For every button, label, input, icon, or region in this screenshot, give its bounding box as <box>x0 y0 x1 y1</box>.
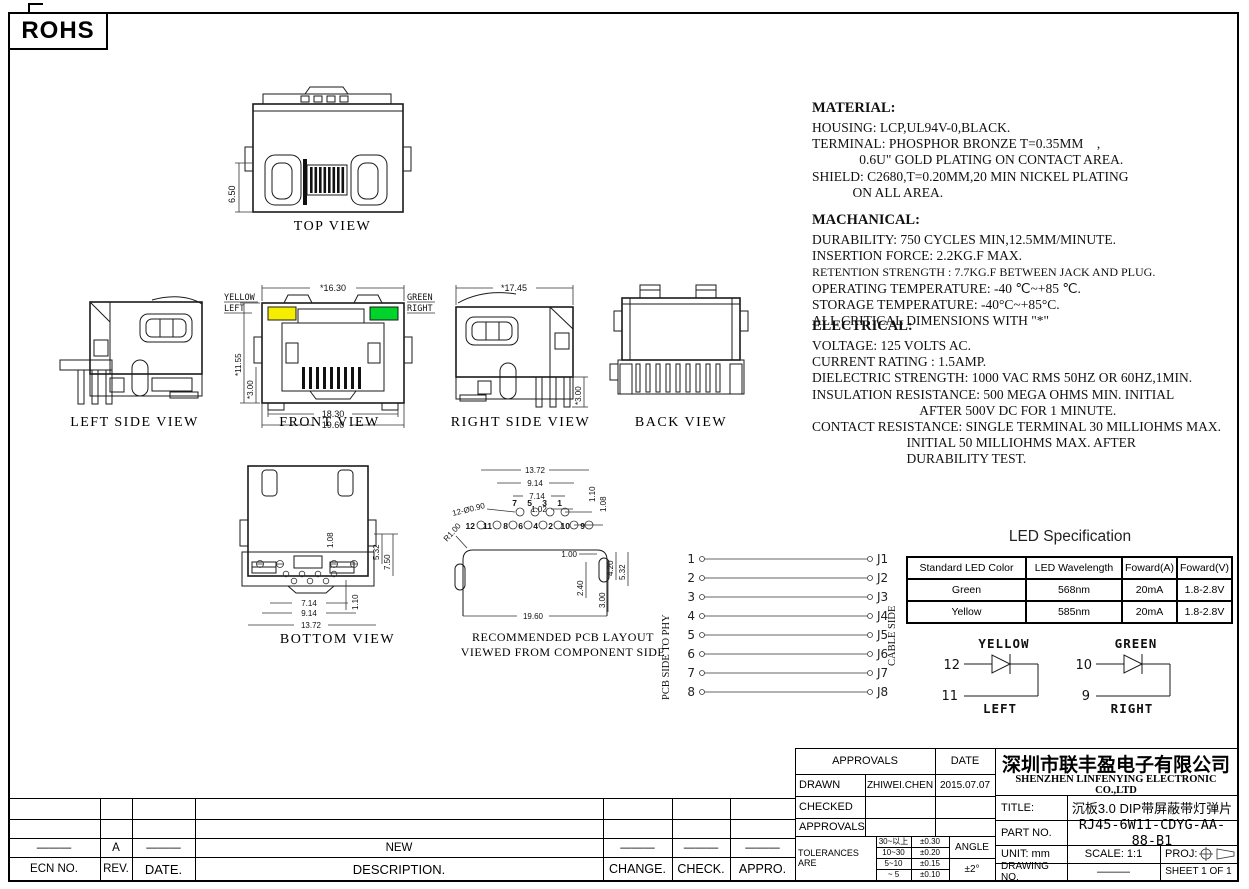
front-led-left-pos: LEFT <box>224 304 244 314</box>
dim-5-32-bottom: 5.32 <box>372 544 381 560</box>
led-col-header: Foward(A) <box>1122 557 1177 579</box>
svg-text:3: 3 <box>687 590 695 604</box>
svg-text:J5: J5 <box>876 628 888 642</box>
led-col-header: LED Wavelength <box>1026 557 1122 579</box>
wiring-rows: 1 J1 2 J2 3 J3 4 J4 5 J5 6 J6 7 J7 8 J8 <box>687 552 888 699</box>
led-table-cell: 1.8-2.8V <box>1177 601 1232 623</box>
tol-value: ±0.10 <box>911 869 949 880</box>
front-view-dims2: *11.55 *3.00 18.30 19.60 <box>234 303 404 430</box>
svg-text:4: 4 <box>687 609 695 623</box>
front-view-label: FRONT VIEW <box>222 415 437 431</box>
led-col-header: Standard LED Color <box>907 557 1026 579</box>
led-circuit-left: YELLOW 12 11 LEFT <box>938 634 1070 722</box>
svg-text:2: 2 <box>687 571 695 585</box>
led-table-cell: 1.8-2.8V <box>1177 579 1232 601</box>
diode-symbol-left <box>964 654 1038 696</box>
rev-date-value: ——— <box>132 838 195 857</box>
svg-text:3: 3 <box>542 498 547 508</box>
dim-7-50-bottom: 7.50 <box>383 554 392 570</box>
pcb-dim-4-20: 4.20 <box>606 560 615 576</box>
part-no-label: PART NO. <box>1001 820 1065 845</box>
svg-text:12: 12 <box>466 521 476 531</box>
angle-value: ±2° <box>949 858 995 880</box>
svg-text:8: 8 <box>503 521 508 531</box>
wiring-right-label: CABLE SIDE <box>887 606 898 666</box>
rev-change-header: CHANGE. <box>603 857 672 881</box>
dim-11-55: *11.55 <box>234 353 243 376</box>
left-side-view-label: LEFT SIDE VIEW <box>52 415 217 431</box>
scale-label: SCALE: 1:1 <box>1067 845 1160 863</box>
part-no-value: RJ45-6W11-CDYG-AA-88-B1 <box>1067 820 1237 845</box>
back-view-drawing <box>606 281 756 421</box>
svg-text:7: 7 <box>687 666 695 680</box>
tol-range: ~ 5 <box>876 869 911 880</box>
company-name-cn: 深圳市联丰盈电子有限公司 <box>995 750 1237 776</box>
dim-7-14-bottom: 7.14 <box>301 599 317 608</box>
svg-text:9: 9 <box>580 521 585 531</box>
rohs-label: ROHS <box>21 17 94 45</box>
led-table-cell: Green <box>907 579 1026 601</box>
svg-text:J2: J2 <box>876 571 888 585</box>
led-table-cell: 20mA <box>1122 579 1177 601</box>
title-block: APPROVALS DATE DRAWN ZHIWEI.CHEN 2015.07… <box>795 748 1237 880</box>
pcb-dims-right: 1.00 4.20 5.32 2.40 3.00 <box>561 550 628 612</box>
rev-date-header: DATE. <box>132 857 195 881</box>
rohs-badge: ROHS <box>8 12 108 50</box>
led-spec-title: LED Specification <box>940 528 1200 546</box>
drawn-date: 2015.07.07 <box>935 774 995 796</box>
svg-text:7: 7 <box>512 498 517 508</box>
svg-text:J3: J3 <box>876 590 888 604</box>
drawn-name: ZHIWEI.CHEN <box>865 774 935 796</box>
dim-1-10-bottom: 1.10 <box>351 594 360 610</box>
third-angle-projection-icon <box>1198 847 1236 861</box>
rev-appro-header: APPRO. <box>730 857 795 881</box>
led-left-cathode-pin: 11 <box>941 689 958 704</box>
tol-value: ±0.30 <box>911 836 949 847</box>
tolerances-label: TOLERANCES ARE <box>798 836 876 880</box>
material-title: MATERIAL: <box>812 100 1128 117</box>
corner-mark <box>28 3 43 5</box>
revision-table: ——— A ——— NEW ——— ——— ——— ECN NO. REV. D… <box>8 798 795 881</box>
svg-text:1: 1 <box>557 498 562 508</box>
proj-label: PROJ: <box>1165 845 1201 863</box>
led-left-color-label: YELLOW <box>978 636 1029 651</box>
led-right-anode-pin: 10 <box>1075 658 1092 673</box>
pcb-dim-bottom: 19.60 <box>463 612 607 621</box>
diode-symbol-right <box>1096 654 1170 696</box>
svg-text:11: 11 <box>483 521 492 531</box>
mechanical-title: MACHANICAL: <box>812 212 1155 229</box>
svg-text:5: 5 <box>527 498 532 508</box>
svg-text:6: 6 <box>518 521 523 531</box>
svg-text:5: 5 <box>687 628 695 642</box>
front-led-left-color: YELLOW <box>224 293 256 303</box>
rev-check-header: CHECK. <box>672 857 730 881</box>
dim-1-08-bottom: 1.08 <box>326 532 335 548</box>
dim-9-14-bottom: 9.14 <box>301 609 317 618</box>
rev-change-value: ——— <box>603 838 672 857</box>
led-circuit-right: GREEN 10 9 RIGHT <box>1070 634 1202 722</box>
approvals-label: APPROVALS <box>799 818 865 836</box>
led-right-position-label: RIGHT <box>1111 701 1154 716</box>
left-side-view-outline <box>60 297 202 404</box>
dim-3-00-right: *3.00 <box>574 386 583 405</box>
pcb-dim-9-14: 9.14 <box>527 479 543 488</box>
pcb-layout-drawing: 13.72 9.14 7.14 1.02 1.10 1.08 12-Ø0.90 … <box>443 456 683 631</box>
material-spec: MATERIAL: HOUSING: LCP,UL94V-0,BLACK. TE… <box>812 100 1128 201</box>
top-view-label: TOP VIEW <box>225 219 440 235</box>
pcb-layout-caption: RECOMMENDED PCB LAYOUT VIEWED FROM COMPO… <box>443 630 683 660</box>
right-side-view-drawing: *17.45 *3.00 <box>438 281 603 433</box>
rev-rev-value: A <box>100 838 132 857</box>
top-view-contact-stripes <box>303 159 344 205</box>
pcb-dim-1-10: 1.10 <box>588 486 597 502</box>
svg-text:2: 2 <box>548 521 553 531</box>
led-col-header: Foward(V) <box>1177 557 1232 579</box>
svg-text:4: 4 <box>533 521 538 531</box>
date-header: DATE <box>935 748 995 774</box>
pcb-dim-1-08: 1.08 <box>599 496 608 512</box>
front-view-drawing: *16.30 YELLOW LEFT GREEN RIGHT <box>222 281 437 433</box>
led-table-cell: 585nm <box>1026 601 1122 623</box>
dim-13-72-bottom: 13.72 <box>301 621 322 630</box>
bottom-view-outline <box>240 466 376 593</box>
tol-range: 5~10 <box>876 858 911 869</box>
svg-text:6: 6 <box>687 647 695 661</box>
approvals-header: APPROVALS <box>795 748 935 774</box>
tol-range: 30~以上 <box>876 836 911 847</box>
pcb-dim-3-00: 3.00 <box>598 592 607 608</box>
pcb-dim-19-60: 19.60 <box>523 612 544 621</box>
right-side-outline <box>456 293 573 407</box>
svg-text:10: 10 <box>561 521 571 531</box>
svg-text:J6: J6 <box>876 647 888 661</box>
front-view-contacts <box>302 367 361 389</box>
angle-label: ANGLE <box>949 836 995 858</box>
pcb-dim-5-32: 5.32 <box>618 564 627 580</box>
bottom-view-label: BOTTOM VIEW <box>230 632 445 648</box>
drawn-label: DRAWN <box>799 774 865 796</box>
pcb-hole-note: 12-Ø0.90 <box>451 501 486 518</box>
svg-text:J7: J7 <box>876 666 888 680</box>
top-view-dim: 6.50 <box>227 163 253 212</box>
svg-text:J1: J1 <box>876 552 888 566</box>
wiring-left-label: PCB SIDE TO PHY <box>661 614 672 700</box>
dim-6-50: 6.50 <box>227 185 237 203</box>
bottom-view-drawing: 1.08 5.32 7.50 1.10 7.14 9.14 13.72 <box>230 460 445 632</box>
tol-value: ±0.15 <box>911 858 949 869</box>
drawing-no-value: ——— <box>1067 863 1160 880</box>
pcb-dim-13-72: 13.72 <box>525 466 546 475</box>
back-view-label: BACK VIEW <box>606 415 756 431</box>
rev-check-value: ——— <box>672 838 730 857</box>
right-side-pin-dim: *3.00 <box>572 377 588 407</box>
checked-label: CHECKED <box>799 796 865 818</box>
wiring-diagram: PCB SIDE TO PHY CABLE SIDE 1 J1 2 J2 3 J… <box>655 538 905 730</box>
left-side-view-drawing <box>52 288 217 415</box>
led-table-cell: 20mA <box>1122 601 1177 623</box>
sheet-label: SHEET 1 OF 1 <box>1160 863 1237 880</box>
bottom-view-pins <box>256 561 358 584</box>
rev-description-header: DESCRIPTION. <box>195 857 603 881</box>
rev-ecn-value: ——— <box>8 838 100 857</box>
svg-text:1: 1 <box>687 552 695 566</box>
front-led-yellow <box>268 307 296 320</box>
rev-rev-header: REV. <box>100 857 132 881</box>
tol-range: 10~30 <box>876 847 911 858</box>
right-side-view-label: RIGHT SIDE VIEW <box>438 415 603 431</box>
pcb-dims-top: 13.72 9.14 7.14 1.02 1.10 1.08 12-Ø0.90 … <box>443 466 608 548</box>
led-left-anode-pin: 12 <box>943 658 960 673</box>
pcb-dim-2-40: 2.40 <box>576 580 585 596</box>
dim-3-00-front: *3.00 <box>246 380 255 399</box>
front-led-green <box>370 307 398 320</box>
electrical-title: ELECTRICAL: <box>812 318 1221 335</box>
svg-text:J4: J4 <box>876 609 888 623</box>
back-view-outline <box>610 285 748 394</box>
tol-value: ±0.20 <box>911 847 949 858</box>
drawing-no-label: DRAWING NO. <box>1001 863 1067 880</box>
drawing-sheet: ROHS 6.50 <box>0 0 1249 889</box>
led-right-color-label: GREEN <box>1115 636 1158 651</box>
top-view-drawing: 6.50 <box>225 85 440 217</box>
pcb-dim-1-00: 1.00 <box>561 550 577 559</box>
led-right-cathode-pin: 9 <box>1082 689 1090 704</box>
front-led-right-pos: RIGHT <box>407 304 433 314</box>
rev-ecn-header: ECN NO. <box>8 857 100 881</box>
led-spec-table: Standard LED Color LED Wavelength Foward… <box>906 556 1233 624</box>
rev-description-value: NEW <box>195 838 603 857</box>
dim-17-45: *17.45 <box>501 283 527 293</box>
pcb-caption-line2: VIEWED FROM COMPONENT SIDE <box>443 645 683 660</box>
top-view-outline <box>245 87 411 212</box>
title-label: TITLE: <box>1001 795 1065 820</box>
dim-16-30: *16.30 <box>320 283 346 293</box>
led-table-cell: Yellow <box>907 601 1026 623</box>
front-led-right-color: GREEN <box>407 293 433 303</box>
svg-text:8: 8 <box>687 685 695 699</box>
mechanical-spec: MACHANICAL: DURABILITY: 750 CYCLES MIN,1… <box>812 212 1155 329</box>
company-name-en: SHENZHEN LINFENYING ELECTRONIC CO.,LTD <box>995 776 1237 794</box>
pcb-caption-line1: RECOMMENDED PCB LAYOUT <box>443 630 683 645</box>
led-table-cell: 568nm <box>1026 579 1122 601</box>
rev-appro-value: ——— <box>730 838 795 857</box>
svg-text:J8: J8 <box>876 685 888 699</box>
led-left-position-label: LEFT <box>983 701 1017 716</box>
electrical-spec: ELECTRICAL: VOLTAGE: 125 VOLTS AC. CURRE… <box>812 318 1221 468</box>
